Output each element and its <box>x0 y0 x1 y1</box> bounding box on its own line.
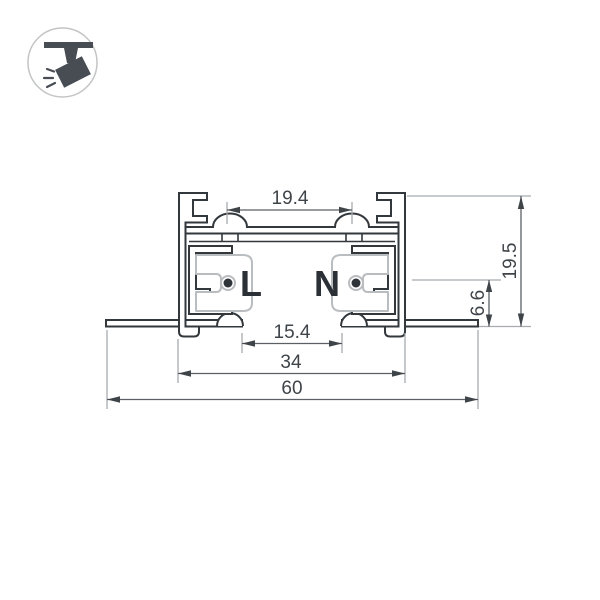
label-live-conductor: L <box>240 263 262 304</box>
dimension-opening-width: 15.4 <box>242 322 342 353</box>
icon-ceiling-bar <box>44 42 93 48</box>
dimension-value: 15.4 <box>274 322 311 343</box>
icon-circle-border <box>28 28 97 97</box>
track-spotlight-icon[interactable] <box>28 28 97 97</box>
arrowhead-left <box>107 396 120 402</box>
top-plate <box>186 214 399 234</box>
arrowhead-left <box>227 207 240 213</box>
right-mounting-wing <box>405 320 478 327</box>
profile-cross-section: L N <box>106 193 478 337</box>
arrowhead-left <box>178 370 191 376</box>
dimension-top-inner-width: 19.4 <box>227 188 352 224</box>
label-neutral-conductor: N <box>314 263 340 304</box>
boss-channel-lines <box>222 234 362 242</box>
left-mounting-wing <box>106 320 179 327</box>
dimension-value: 19.4 <box>272 188 309 209</box>
neutral-conductor-dot <box>352 279 361 288</box>
dimension-value: 34 <box>280 352 302 373</box>
live-conductor-dot <box>224 279 233 288</box>
dimension-value: 60 <box>281 378 302 399</box>
arrowhead-left <box>242 340 255 346</box>
dimension-value: 6.6 <box>468 290 489 316</box>
arrowhead-right <box>339 207 352 213</box>
arrowhead-bottom <box>518 314 524 327</box>
arrowhead-right <box>329 340 342 346</box>
arrowhead-right <box>465 396 478 402</box>
arrowhead-right <box>392 370 405 376</box>
drawing-canvas: L N 19.4 19.5 6.6 <box>0 0 600 600</box>
technical-drawing: L N 19.4 19.5 6.6 <box>0 0 600 600</box>
arrowhead-top <box>518 196 524 209</box>
dimension-value: 19.5 <box>500 243 521 280</box>
